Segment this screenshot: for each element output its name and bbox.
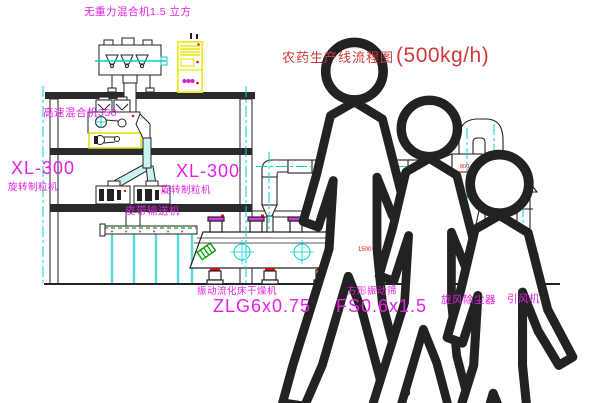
label-xl300-right: XL-300 bbox=[176, 162, 240, 180]
rotary-granulator-left bbox=[96, 181, 130, 204]
label-granulator-right: 旋转制粒机 bbox=[161, 186, 211, 196]
label-screen-model: FS0.6x1.5 bbox=[336, 297, 427, 315]
label-dryer-model: ZLG6x0.75 bbox=[213, 297, 311, 315]
dimension-text-1500: 1500 bbox=[358, 247, 371, 253]
cad-flow-diagram: 农药生产线流程图 (500kg/h) 无重力混合机1.5 立方 高速混合机350… bbox=[0, 0, 600, 403]
label-granulator-left: 旋转制粒机 bbox=[8, 183, 58, 193]
label-cyclone: 旋风除尘器 bbox=[441, 295, 496, 306]
high-speed-mixer bbox=[88, 97, 150, 148]
label-belt-conveyor: 皮带输送机 bbox=[125, 206, 180, 217]
title-capacity: (500kg/h) bbox=[396, 44, 489, 68]
dimension-text-800: 800 bbox=[460, 165, 469, 171]
floor-slab-top bbox=[45, 92, 255, 99]
title-chinese: 农药生产线流程图 bbox=[282, 47, 394, 66]
control-cabinet-top bbox=[178, 33, 202, 92]
cabinet-knob bbox=[183, 79, 187, 83]
label-gravity-mixer: 无重力混合机1.5 立方 bbox=[84, 7, 192, 18]
label-xl300-left: XL-300 bbox=[11, 159, 75, 177]
belt-conveyor bbox=[100, 212, 197, 283]
label-fan: 引风机 bbox=[507, 294, 540, 305]
diagram-title: 农药生产线流程图 (500kg/h) bbox=[282, 44, 489, 68]
label-high-speed-mixer: 高速混合机350 bbox=[43, 108, 117, 119]
